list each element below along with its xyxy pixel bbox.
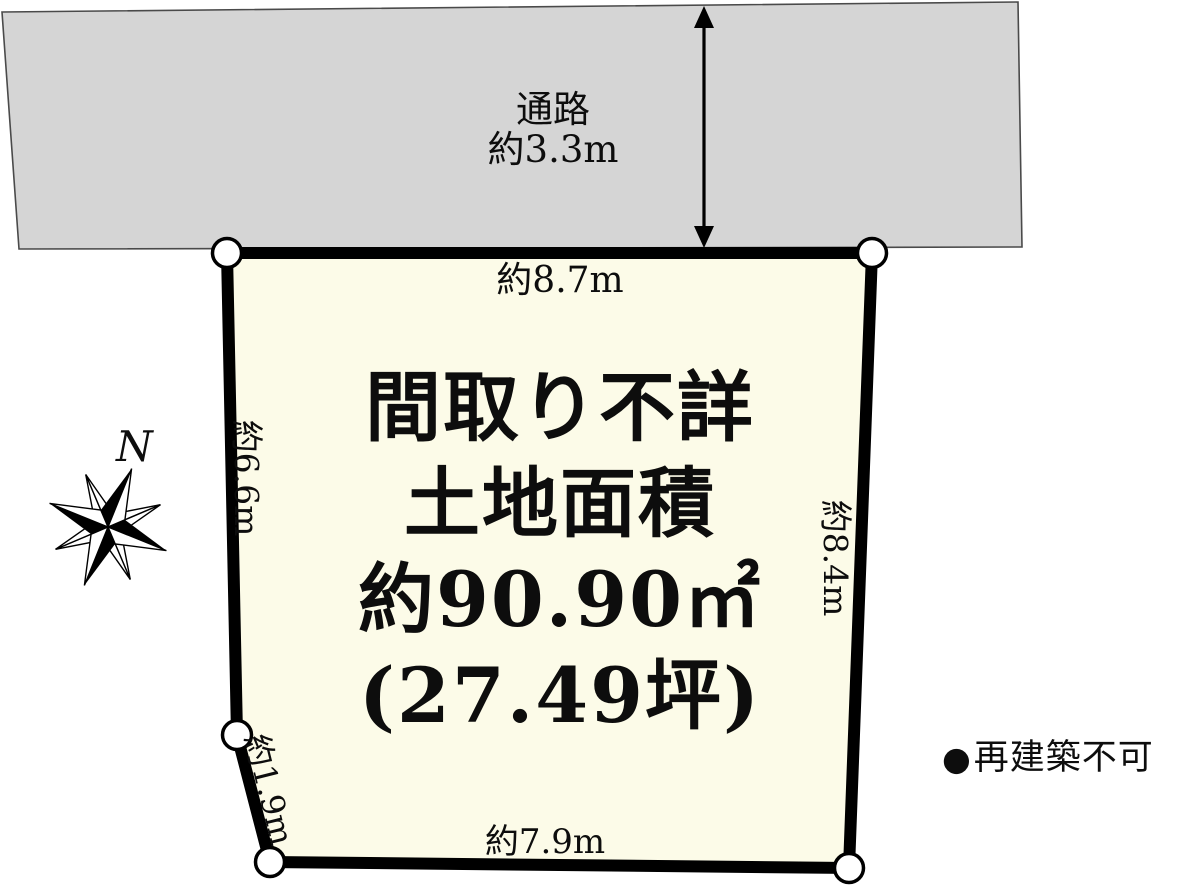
plot-description-line4: (27.49坪) bbox=[260, 648, 860, 744]
rebuild-note-text: 再建築不可 bbox=[974, 740, 1154, 778]
site-plan-canvas: 通路 約3.3m N 約8.7m 約6.6m 約8.4m 約1.9m 約7.9m… bbox=[0, 0, 1200, 886]
road-width: 約3.3m bbox=[403, 130, 703, 170]
plot-description-line1: 間取り不詳 bbox=[260, 360, 860, 456]
compass-north-label: N bbox=[116, 424, 153, 469]
corner-marker-bottom-left bbox=[256, 848, 285, 877]
dim-label-bottom: 約7.9m bbox=[395, 824, 695, 861]
plot-description-line2: 土地面積 bbox=[260, 456, 860, 552]
compass-icon bbox=[26, 445, 190, 609]
bullet-icon: ● bbox=[942, 741, 972, 777]
corner-marker-top-right bbox=[858, 239, 887, 268]
corner-marker-top-left bbox=[213, 239, 242, 268]
plot-description-line3: 約90.90㎡ bbox=[260, 552, 860, 648]
corner-marker-bottom-right bbox=[835, 854, 864, 883]
rebuild-note: ● 再建築不可 bbox=[942, 740, 1154, 778]
road-label: 通路 約3.3m bbox=[403, 90, 703, 170]
road-name: 通路 bbox=[403, 90, 703, 130]
dim-label-top: 約8.7m bbox=[410, 262, 710, 301]
plot-description: 間取り不詳 土地面積 約90.90㎡ (27.49坪) bbox=[260, 360, 860, 744]
